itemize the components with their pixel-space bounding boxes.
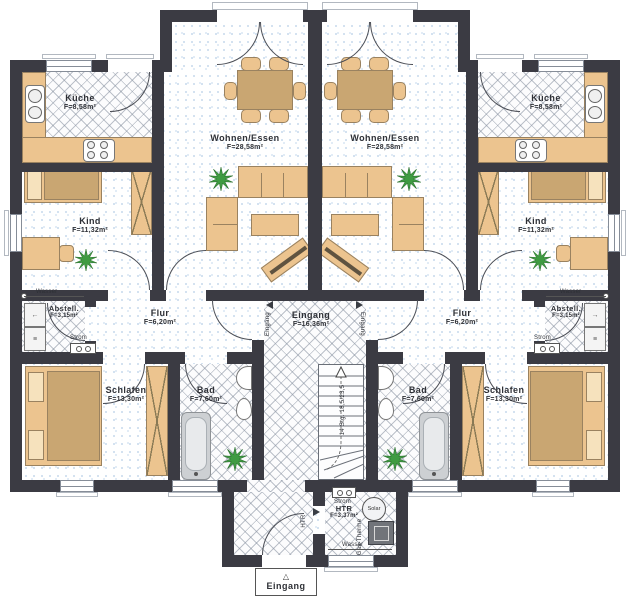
strom-label-left: Strom <box>70 335 87 341</box>
window <box>328 555 374 567</box>
dining-chair <box>241 57 261 71</box>
wall <box>396 480 408 567</box>
pillow <box>586 430 602 460</box>
wall <box>264 290 366 301</box>
window-sill <box>476 54 524 59</box>
wardrobe <box>462 366 484 476</box>
dining-chair <box>341 109 361 123</box>
duvet <box>47 371 100 461</box>
room-label-schlafen-right: SchlafenF=13,30m² <box>484 385 525 404</box>
electric-meter <box>534 343 560 354</box>
window <box>46 60 92 72</box>
desk <box>22 237 60 270</box>
pillow <box>588 170 603 200</box>
plant-icon <box>208 166 234 192</box>
room-label-flur-right: FlurF=6,20m² <box>446 308 478 327</box>
terrace-door-opening <box>327 10 413 22</box>
toilet <box>378 398 394 420</box>
window <box>412 480 458 492</box>
chair <box>59 245 74 262</box>
wall <box>152 72 164 290</box>
wall <box>160 10 470 22</box>
dining-table <box>337 70 393 110</box>
plant-icon <box>528 248 552 272</box>
room-label-kind-left: KindF=11,32m² <box>72 216 108 235</box>
passage-floor <box>247 480 305 492</box>
dining-chair <box>293 82 306 100</box>
wall <box>466 163 608 172</box>
stove-burner <box>519 151 527 159</box>
sink-basin <box>588 106 602 119</box>
wall <box>150 290 166 301</box>
room-label-wohnen-right: Wohnen/EssenF=28,58m² <box>350 133 419 152</box>
sofa <box>392 197 424 251</box>
window-sill <box>42 54 96 59</box>
water-line <box>546 296 606 297</box>
room-label-abstell-right: Abstell.F=3,15m² <box>551 304 581 320</box>
window-sill <box>4 210 9 256</box>
wall <box>366 290 378 300</box>
door-opening <box>108 60 152 72</box>
dining-chair <box>369 109 389 123</box>
wall <box>313 492 325 506</box>
window-sill <box>408 492 462 497</box>
wall <box>466 72 478 290</box>
room-label-abstell-left: Abstell.F=3,15m² <box>49 304 79 320</box>
coffee-table <box>331 214 379 236</box>
pillow <box>586 372 602 402</box>
entry-door-label-left: Eingang <box>265 304 275 344</box>
wall <box>168 364 180 480</box>
wasser-label-left: Wasser <box>36 289 57 295</box>
wall <box>450 364 462 480</box>
stove-burner <box>87 141 95 149</box>
plant-icon <box>396 166 422 192</box>
desk <box>570 237 608 270</box>
pillow <box>27 170 42 200</box>
wardrobe <box>478 169 499 235</box>
window-sill <box>56 492 98 497</box>
coffee-table <box>251 214 299 236</box>
wardrobe <box>131 169 152 235</box>
bathtub <box>181 412 211 480</box>
gas-boiler <box>368 521 394 545</box>
wasser-label-htr: Wasser <box>342 542 363 548</box>
wall <box>234 480 247 492</box>
wall <box>534 301 545 307</box>
entry-door-label-right: Eingang <box>355 304 365 344</box>
dining-table <box>237 70 293 110</box>
pillow <box>28 430 44 460</box>
wall <box>366 352 403 364</box>
htr-door-label: HTR <box>301 506 311 536</box>
stove-burner <box>87 151 95 159</box>
wall <box>22 163 164 172</box>
entrance-sign-label: Eingang <box>267 581 306 591</box>
duvet <box>531 170 586 200</box>
stove-burner <box>100 141 108 149</box>
window <box>608 214 620 252</box>
strom-label-htr: Strom <box>334 499 351 505</box>
stove-burner <box>532 151 540 159</box>
dining-chair <box>324 82 337 100</box>
wall <box>85 301 96 307</box>
electric-meter <box>70 343 96 354</box>
wall <box>445 352 485 364</box>
bathtub <box>419 412 449 480</box>
dining-chair <box>269 109 289 123</box>
wall <box>608 60 620 492</box>
plant-icon <box>222 446 248 472</box>
stairs-label: 14 Stg. 18,5/23,5 <box>340 370 350 450</box>
window <box>10 214 22 252</box>
dryer: ≡ <box>24 327 46 351</box>
plant-icon <box>382 446 408 472</box>
dining-chair <box>369 57 389 71</box>
floor-plan: ← ≡ → ≡ 14 Stg. 18,5/ <box>0 0 630 616</box>
water-line <box>24 296 84 297</box>
dryer: ≡ <box>584 327 606 351</box>
sink-basin <box>588 89 602 103</box>
room-label-flur-left: FlurF=6,20m² <box>144 308 176 327</box>
terrace-sill <box>322 2 418 10</box>
room-label-kueche-left: KücheF=8,58m² <box>64 93 96 112</box>
room-label-htr: HTRF=3,37m² <box>330 504 358 520</box>
sofa <box>238 166 308 198</box>
dining-chair <box>241 109 261 123</box>
duvet <box>530 371 583 461</box>
gas-therme-label: Gas-Therme <box>357 515 367 559</box>
wall <box>308 22 322 290</box>
terrace-door-opening <box>217 10 303 22</box>
sofa <box>322 166 392 198</box>
wall <box>252 290 264 300</box>
wardrobe <box>146 366 168 476</box>
room-label-kueche-right: KücheF=8,58m² <box>530 93 562 112</box>
plant-icon <box>74 248 98 272</box>
electric-meter <box>332 487 356 498</box>
room-label-eingang: EingangF=16,36m² <box>292 310 330 329</box>
stove-burner <box>100 151 108 159</box>
strom-label-right: Strom <box>534 335 551 341</box>
room-label-bad-left: BadF=7,60m² <box>190 385 222 404</box>
entrance-arrow-icon: △ <box>283 573 289 581</box>
wall <box>227 352 264 364</box>
window <box>536 480 570 492</box>
pillow <box>28 372 44 402</box>
window-sill <box>168 492 222 497</box>
room-label-wohnen-left: Wohnen/EssenF=28,58m² <box>210 133 279 152</box>
duvet <box>44 170 99 200</box>
sink-basin <box>28 89 42 103</box>
wall <box>222 480 234 567</box>
door-opening <box>478 60 522 72</box>
htr-arrow-icon <box>313 508 320 516</box>
window-sill <box>534 54 588 59</box>
room-label-bad-right: BadF=7,60m² <box>402 385 434 404</box>
terrace-sill <box>212 2 308 10</box>
stove-burner <box>532 141 540 149</box>
window-sill <box>324 567 378 572</box>
chair <box>556 245 571 262</box>
wall <box>222 555 262 567</box>
room-label-kind-right: KindF=11,32m² <box>518 216 554 235</box>
room-label-schlafen-left: SchlafenF=13,30m² <box>106 385 147 404</box>
dining-chair <box>224 82 237 100</box>
washer: → <box>584 303 606 327</box>
window-sill <box>106 54 154 59</box>
wall <box>145 352 185 364</box>
window <box>60 480 94 492</box>
wall <box>10 60 22 492</box>
dining-chair <box>393 82 406 100</box>
sink-basin <box>28 106 42 119</box>
wall <box>313 534 325 555</box>
water-line <box>328 549 392 550</box>
window-sill <box>532 492 574 497</box>
sofa <box>206 197 238 251</box>
window <box>172 480 218 492</box>
washer: ← <box>24 303 46 327</box>
window-sill <box>621 210 626 256</box>
wall <box>464 290 480 301</box>
entrance-sign: △ Eingang <box>255 568 317 596</box>
stove-burner <box>519 141 527 149</box>
toilet <box>236 398 252 420</box>
wasser-label-right: Wasser <box>560 289 581 295</box>
window <box>538 60 584 72</box>
